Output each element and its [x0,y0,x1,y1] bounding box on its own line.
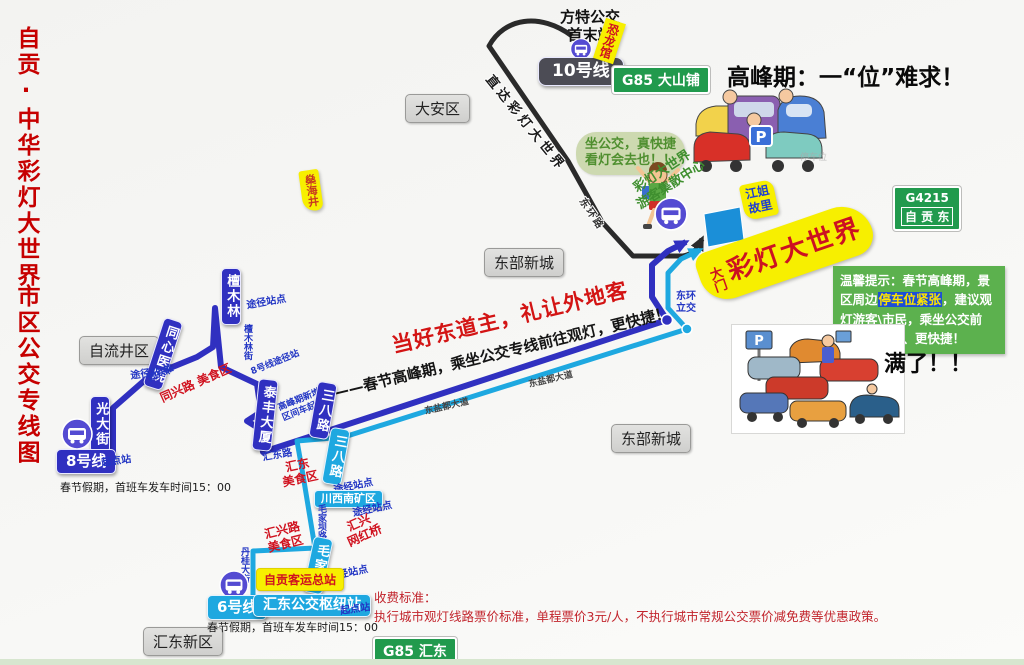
region-dongbu-1: 东部新城 [484,248,564,277]
highway-sign-g4215: G4215 自 贡 东 [893,186,961,231]
g4215-code: G4215 [901,191,953,205]
parking-jam-cartoon: P 停车位 [690,84,832,174]
region-daan: 大安区 [405,94,470,123]
station-badge-guangda: 光大街 [90,396,110,453]
parking-tight-highlight: 停车位紧张 [878,292,943,307]
region-dongbu-2: 东部新城 [611,424,691,453]
page-title-line1: 自贡·中华彩灯大世界 [14,26,37,289]
gate-text: 大门 [703,265,729,296]
line8-schedule: 春节假期，首班车发车时间15：00 [60,479,231,495]
watermark-text: 停车位 [800,151,827,163]
p-sign-glyph: P [754,334,764,349]
g4215-name: 自 贡 东 [901,207,953,226]
route-line6-node [682,324,692,334]
bottom-border-strip [0,659,1024,665]
bus-icon [61,418,93,450]
street-label-tanmulin: 檀木林街 [241,324,254,360]
fare-standard-note: 收费标准：执行城市观灯线路票价标准，单程票价3元/人，不执行城市常规公交票价减免… [374,588,886,627]
lantern-world-bus-map: 自贡·中华彩灯大世界 市区公交专线图 方特公交首末站 10号线 恐龙馆 G85 … [0,0,1024,665]
line6-schedule: 春节假期，首班车发车时间15：00 [207,619,378,635]
station-badge-tanmulin: 檀木林 [221,268,241,325]
interchange-label: 东环立交 [676,291,696,315]
p-sign-glyph: P [756,128,767,146]
full-label: 满了！！ [884,346,972,378]
bus-icon [654,197,688,231]
region-ziliujing: 自流井区 [79,336,159,365]
street-label-maojiaba-road: 毛家坝路 [315,504,328,540]
full-parking-cartoon: P [732,325,904,433]
page-title-line2: 市区公交专线图 [14,284,37,466]
station-badge-keyun-terminal: 自贡客运总站 [256,568,344,591]
